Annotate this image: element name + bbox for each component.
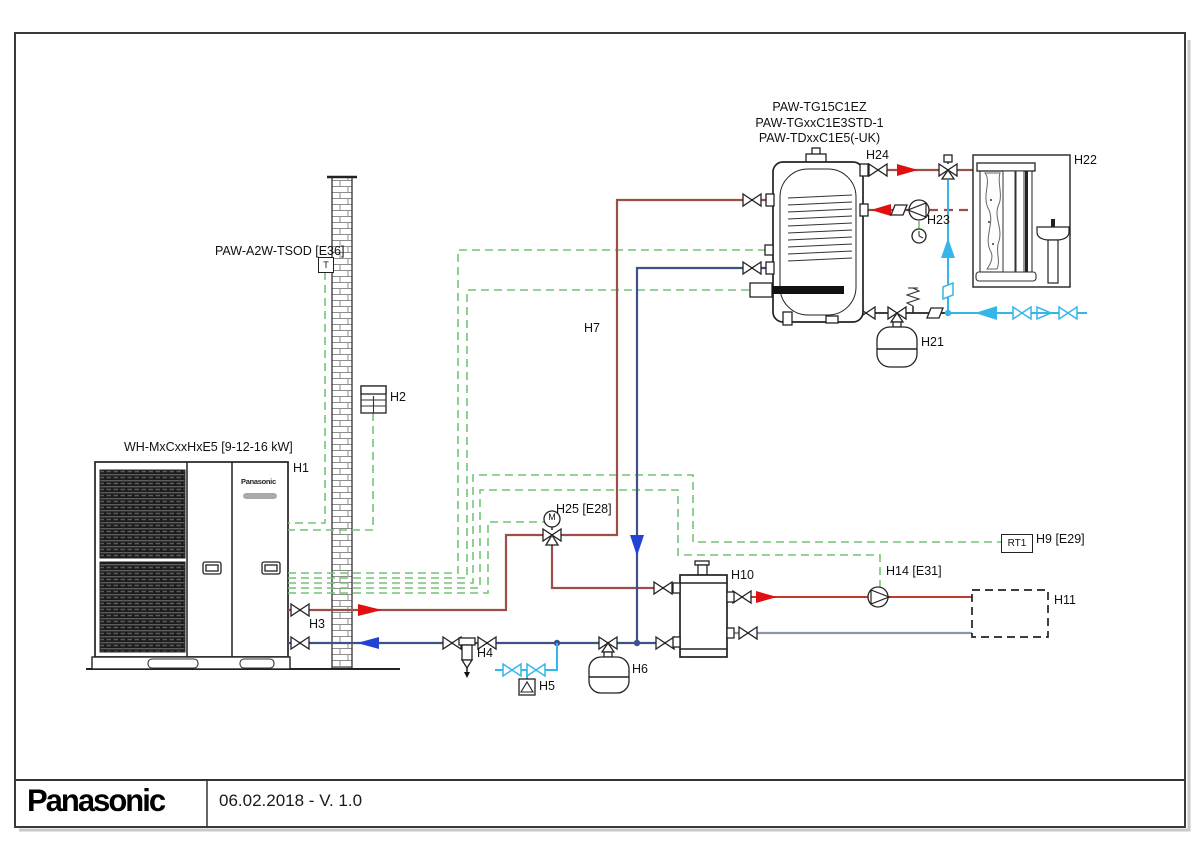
tag-h10: H10 bbox=[731, 568, 754, 582]
tag-h11: H11 bbox=[1054, 593, 1076, 607]
room-thermostat-box: RT1 bbox=[1001, 534, 1033, 553]
tag-h9: H9 [E29] bbox=[1036, 532, 1085, 546]
heating-circuit-box bbox=[972, 590, 1048, 637]
tank-model-labels: PAW-TG15C1EZ PAW-TGxxC1E3STD-1 PAW-TDxxC… bbox=[737, 100, 902, 147]
expansion-vessel-h6 bbox=[589, 637, 629, 693]
heat-pump-unit bbox=[92, 462, 290, 669]
tag-h23: H23 bbox=[927, 213, 950, 227]
control-cables bbox=[288, 221, 1001, 593]
expansion-vessel-h21 bbox=[877, 307, 917, 367]
tag-h22: H22 bbox=[1074, 153, 1097, 167]
hp-model-label: WH-MxCxxHxE5 [9-12-16 kW] bbox=[124, 440, 293, 454]
buffer-tank bbox=[673, 561, 734, 657]
tag-h3: H3 bbox=[309, 617, 325, 631]
safety-valve-icon bbox=[907, 288, 919, 313]
mixing-valve-icon bbox=[939, 155, 957, 179]
pump-icon-h23 bbox=[908, 200, 929, 220]
unit-base bbox=[92, 657, 290, 669]
filling-loop-icon bbox=[519, 679, 535, 695]
tag-h7: H7 bbox=[584, 321, 600, 335]
tag-h24: H24 bbox=[866, 148, 889, 162]
tag-h25: H25 [E28] bbox=[556, 502, 612, 516]
tag-h5: H5 bbox=[539, 679, 555, 693]
unit-brand-label: Panasonic bbox=[241, 477, 276, 486]
tank-model-line1: PAW-TG15C1EZ bbox=[737, 100, 902, 116]
tag-h2: H2 bbox=[390, 390, 406, 404]
bathroom-box bbox=[973, 155, 1070, 287]
controller-icon-h2 bbox=[361, 386, 386, 413]
temperature-sensor-box: T bbox=[318, 257, 334, 273]
filter-icon bbox=[459, 638, 475, 678]
dhw-tank bbox=[750, 148, 868, 325]
tank-model-line3: PAW-TDxxC1E5(-UK) bbox=[737, 131, 902, 147]
pump-icon-h14 bbox=[868, 587, 889, 607]
schematic-svg bbox=[0, 0, 1200, 851]
aquarea-logo bbox=[243, 493, 277, 499]
timer-icon bbox=[912, 229, 926, 243]
tag-h4: H4 bbox=[477, 646, 493, 660]
schematic-page: WH-MxCxxHxE5 [9-12-16 kW] Panasonic H1 P… bbox=[0, 0, 1200, 851]
tag-h1: H1 bbox=[293, 461, 309, 475]
tag-h6: H6 bbox=[632, 662, 648, 676]
tag-h21: H21 bbox=[921, 335, 944, 349]
panasonic-logo: Panasonic bbox=[27, 783, 164, 820]
tag-h14: H14 [E31] bbox=[886, 564, 942, 578]
date-version-label: 06.02.2018 - V. 1.0 bbox=[219, 791, 362, 811]
page-border bbox=[15, 33, 1189, 830]
motor-actuator-label: M bbox=[545, 512, 559, 522]
tank-model-line2: PAW-TGxxC1E3STD-1 bbox=[737, 116, 902, 132]
